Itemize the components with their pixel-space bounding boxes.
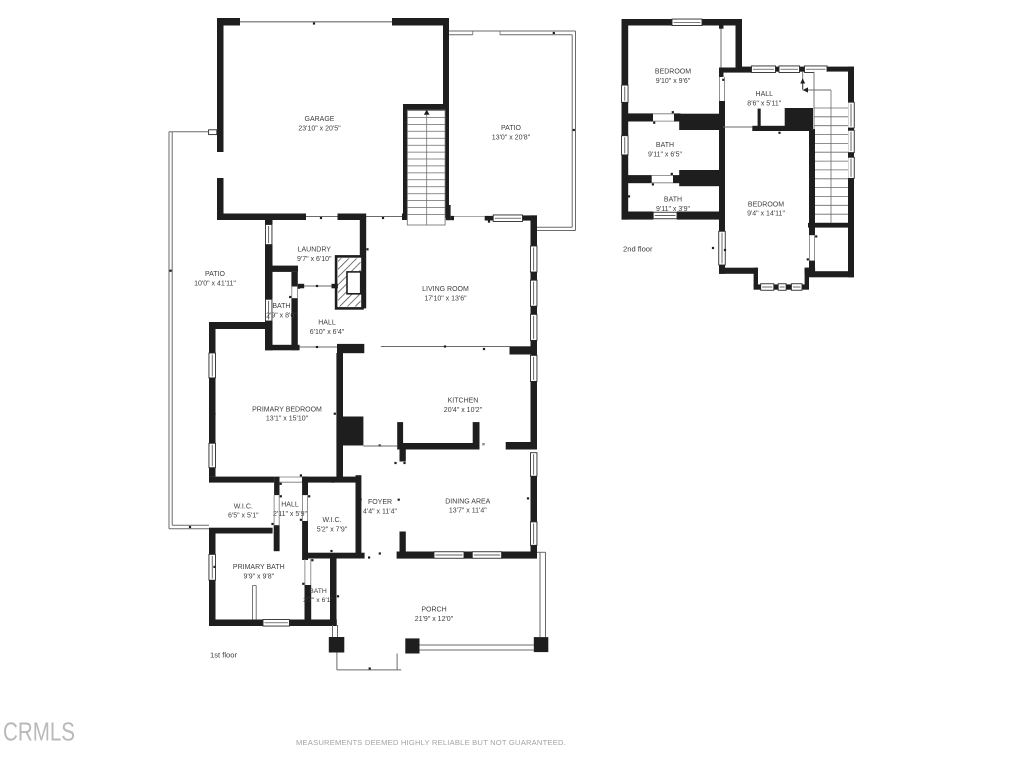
svg-text:GARAGE: GARAGE: [305, 116, 335, 123]
svg-text:6'5" x 5'1": 6'5" x 5'1": [228, 513, 259, 520]
svg-text:BEDROOM: BEDROOM: [655, 69, 691, 76]
svg-text:9'11" x 6'5": 9'11" x 6'5": [648, 151, 682, 158]
svg-text:5'2" x 7'9": 5'2" x 7'9": [317, 526, 348, 533]
svg-text:BEDROOM: BEDROOM: [748, 201, 784, 208]
svg-text:MEASUREMENTS DEEMED HIGHLY REL: MEASUREMENTS DEEMED HIGHLY RELIABLE BUT …: [296, 738, 566, 747]
svg-text:PATIO: PATIO: [205, 271, 226, 278]
svg-text:BATH: BATH: [664, 197, 682, 204]
svg-text:9'10" x 9'6": 9'10" x 9'6": [656, 78, 691, 85]
svg-text:13'7" x 11'4": 13'7" x 11'4": [449, 508, 487, 515]
svg-text:10'0" x 41'11": 10'0" x 41'11": [194, 280, 236, 287]
svg-text:21'9" x 12'0": 21'9" x 12'0": [415, 616, 454, 623]
svg-text:8'6" x 5'11": 8'6" x 5'11": [747, 100, 781, 107]
svg-text:PRIMARY BEDROOM: PRIMARY BEDROOM: [252, 406, 322, 413]
svg-text:FOYER: FOYER: [368, 499, 392, 506]
svg-text:6'10" x 6'4": 6'10" x 6'4": [310, 329, 345, 336]
svg-text:BATH: BATH: [309, 588, 327, 595]
svg-text:DINING AREA: DINING AREA: [445, 498, 490, 505]
svg-text:LAUNDRY: LAUNDRY: [298, 247, 332, 254]
svg-text:9'9" x 9'8": 9'9" x 9'8": [243, 573, 274, 580]
svg-text:PRIMARY BATH: PRIMARY BATH: [233, 564, 285, 571]
svg-text:2nd floor: 2nd floor: [623, 245, 653, 254]
svg-text:13'1" x 15'10": 13'1" x 15'10": [266, 416, 309, 423]
svg-text:W.I.C.: W.I.C.: [322, 517, 341, 524]
svg-text:W.I.C.: W.I.C.: [234, 503, 253, 510]
svg-text:LIVING ROOM: LIVING ROOM: [422, 286, 469, 293]
svg-text:BATH: BATH: [272, 303, 290, 310]
svg-text:4'4" x 11'4": 4'4" x 11'4": [363, 508, 397, 515]
svg-text:23'10" x 20'5": 23'10" x 20'5": [298, 125, 341, 132]
svg-text:PORCH: PORCH: [421, 607, 446, 614]
svg-text:PATIO: PATIO: [501, 125, 522, 132]
svg-text:1st floor: 1st floor: [210, 651, 237, 660]
svg-text:2'9" x 8'6": 2'9" x 8'6": [266, 312, 297, 319]
svg-text:9'4" x 14'11": 9'4" x 14'11": [747, 211, 785, 218]
svg-text:13'0" x 20'8": 13'0" x 20'8": [492, 134, 531, 141]
svg-text:2'7" x 6'1": 2'7" x 6'1": [303, 597, 333, 604]
svg-text:KITCHEN: KITCHEN: [448, 398, 479, 405]
svg-text:HALL: HALL: [756, 91, 774, 98]
svg-text:17'10" x 13'6": 17'10" x 13'6": [424, 295, 467, 302]
svg-text:HALL: HALL: [318, 320, 336, 327]
svg-text:HALL: HALL: [281, 502, 299, 509]
svg-text:BATH: BATH: [656, 142, 674, 149]
svg-text:20'4" x 10'2": 20'4" x 10'2": [444, 407, 483, 414]
svg-text:9'7" x 6'10": 9'7" x 6'10": [297, 256, 332, 263]
svg-text:CRMLS: CRMLS: [3, 719, 75, 747]
